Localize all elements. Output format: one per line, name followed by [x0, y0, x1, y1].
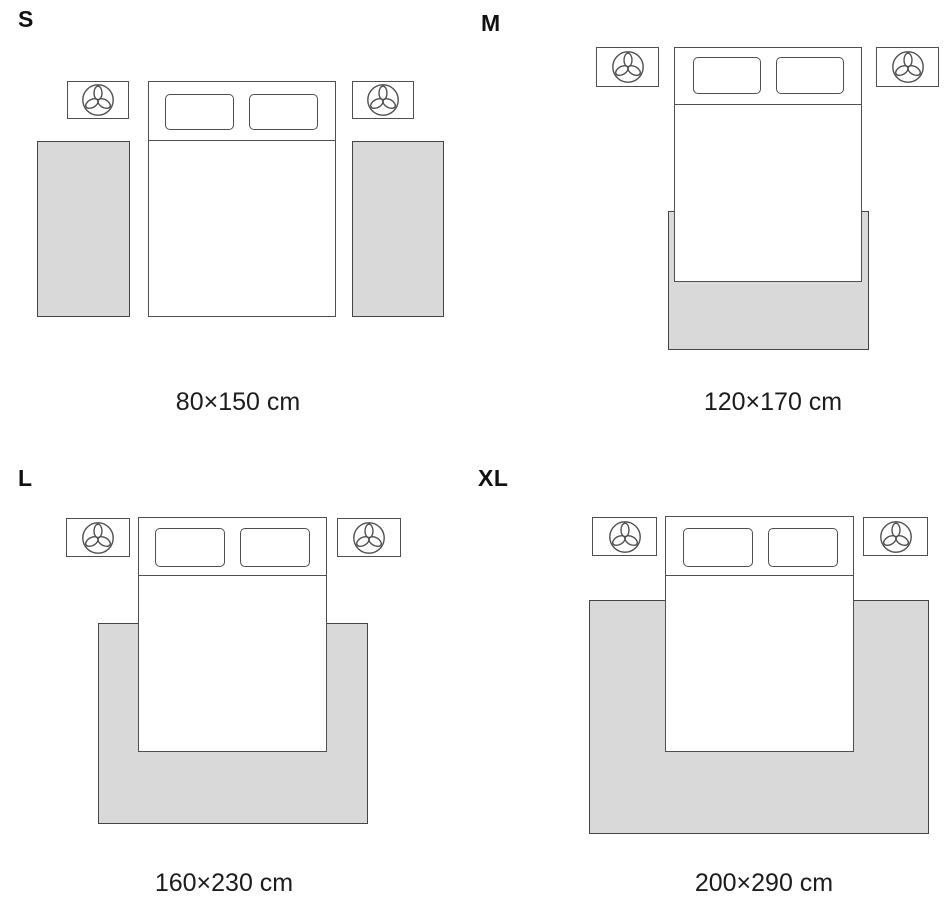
size-panel-xl: XL: [475, 450, 950, 900]
plant-icon: [879, 520, 913, 554]
plant-icon: [608, 520, 642, 554]
nightstand-left: [592, 517, 657, 556]
pillow-right: [240, 528, 310, 567]
size-label-s: S: [18, 8, 34, 31]
bed: [674, 47, 862, 282]
pillow-left: [165, 94, 234, 130]
pillow-right: [776, 57, 844, 94]
rug-size-caption-m: 120×170 cm: [623, 388, 923, 417]
bed-sheet-line: [675, 104, 861, 105]
plant-icon: [81, 521, 115, 555]
nightstand-right: [352, 81, 414, 119]
pillow-left: [155, 528, 225, 567]
rug-size-guide-diagram: S: [0, 0, 950, 900]
plant-icon: [891, 50, 925, 84]
bed-sheet-line: [139, 575, 326, 576]
rug-size-caption-xl: 200×290 cm: [614, 869, 914, 898]
bed-sheet-line: [666, 575, 853, 576]
rug-size-caption-s: 80×150 cm: [88, 388, 388, 417]
nightstand-left: [66, 518, 130, 557]
nightstand-right: [863, 517, 928, 556]
bed: [665, 516, 854, 752]
size-label-xl: XL: [478, 467, 508, 490]
size-panel-s: S: [0, 0, 475, 450]
bed: [148, 81, 336, 317]
plant-icon: [81, 83, 115, 117]
bed-sheet-line: [149, 140, 335, 141]
plant-icon: [366, 83, 400, 117]
pillow-left: [683, 528, 753, 567]
rug-left-runner: [37, 141, 130, 317]
pillow-right: [768, 528, 838, 567]
rug-right-runner: [352, 141, 444, 317]
plant-icon: [352, 521, 386, 555]
rug-size-caption-l: 160×230 cm: [74, 869, 374, 898]
pillow-left: [693, 57, 761, 94]
nightstand-left: [67, 81, 129, 119]
size-panel-m: M: [475, 0, 950, 450]
size-label-l: L: [18, 467, 33, 490]
size-label-m: M: [481, 12, 501, 35]
bed: [138, 517, 327, 752]
nightstand-right: [876, 47, 939, 87]
plant-icon: [611, 50, 645, 84]
size-panel-l: L: [0, 450, 475, 900]
pillow-right: [249, 94, 318, 130]
nightstand-right: [337, 518, 401, 557]
nightstand-left: [596, 47, 659, 87]
